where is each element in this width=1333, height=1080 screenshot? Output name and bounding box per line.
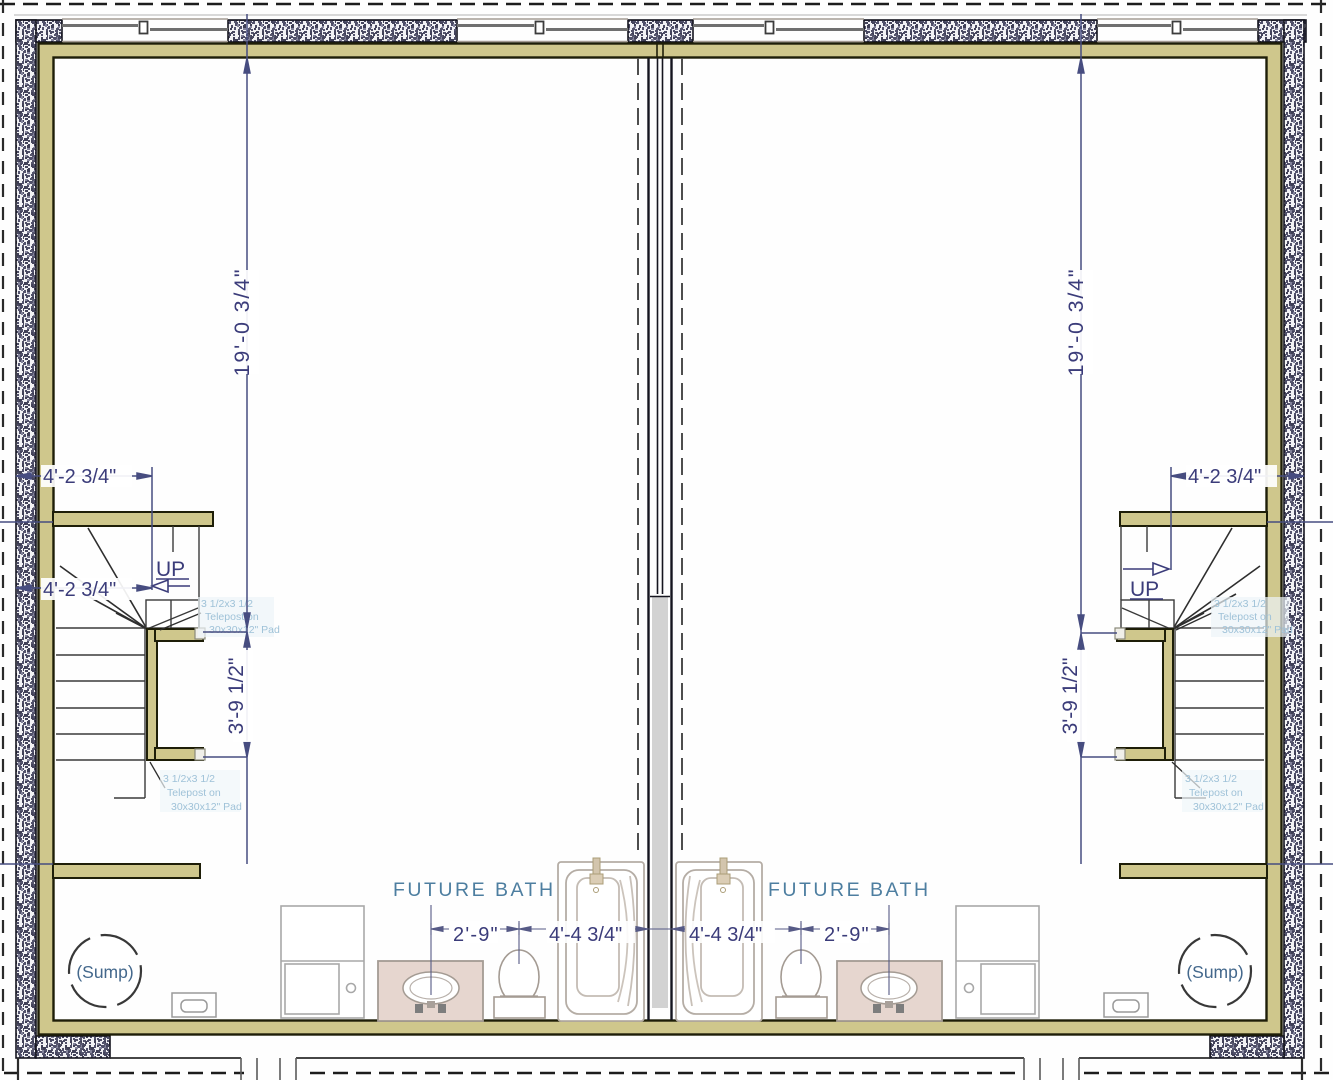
svg-text:2'-9": 2'-9" <box>824 924 870 946</box>
svg-text:30x30x12" Pad: 30x30x12" Pad <box>1222 624 1293 636</box>
svg-text:30x30x12" Pad: 30x30x12" Pad <box>1193 801 1264 813</box>
svg-text:4'-4 3/4": 4'-4 3/4" <box>549 924 622 946</box>
svg-text:FUTURE BATH: FUTURE BATH <box>393 879 556 901</box>
svg-text:4'-2 3/4": 4'-2 3/4" <box>1188 466 1261 488</box>
svg-text:30x30x12" Pad: 30x30x12" Pad <box>171 801 242 813</box>
svg-text:3'-9 1/2": 3'-9 1/2" <box>1059 658 1082 735</box>
svg-text:FUTURE BATH: FUTURE BATH <box>768 879 931 901</box>
svg-text:4'-2 3/4": 4'-2 3/4" <box>43 579 116 601</box>
svg-text:19'-0 3/4": 19'-0 3/4" <box>230 268 254 377</box>
svg-text:4'-4 3/4": 4'-4 3/4" <box>689 924 762 946</box>
svg-text:2'-9": 2'-9" <box>453 924 499 946</box>
svg-text:3 1/2x3 1/2: 3 1/2x3 1/2 <box>163 773 215 785</box>
svg-text:(Sump): (Sump) <box>1186 962 1243 982</box>
svg-text:30x30x12" Pad: 30x30x12" Pad <box>209 624 280 636</box>
svg-text:3 1/2x3 1/2: 3 1/2x3 1/2 <box>1185 773 1237 785</box>
svg-text:Telepost on: Telepost on <box>1218 611 1272 623</box>
svg-text:(Sump): (Sump) <box>76 962 133 982</box>
svg-text:UP: UP <box>1130 578 1159 601</box>
svg-text:4'-2 3/4": 4'-2 3/4" <box>43 466 116 488</box>
svg-text:Telepost on: Telepost on <box>167 787 221 799</box>
svg-text:UP: UP <box>156 558 185 581</box>
svg-text:Telepost on: Telepost on <box>1189 787 1243 799</box>
svg-text:3'-9 1/2": 3'-9 1/2" <box>225 658 248 735</box>
svg-text:3 1/2x3 1/2: 3 1/2x3 1/2 <box>201 598 253 610</box>
svg-text:3 1/2x3 1/2: 3 1/2x3 1/2 <box>1214 598 1266 610</box>
svg-text:19'-0 3/4": 19'-0 3/4" <box>1064 268 1088 377</box>
